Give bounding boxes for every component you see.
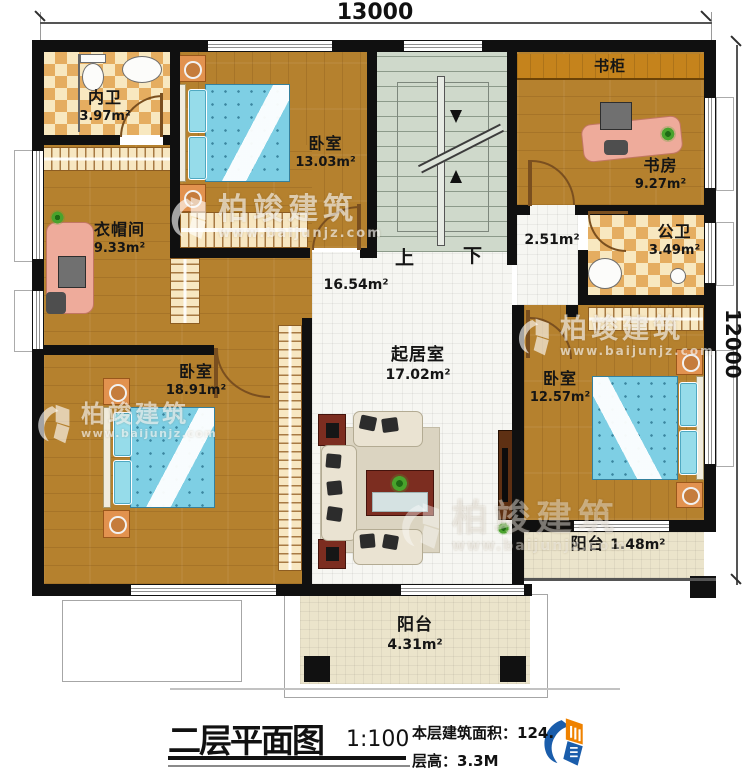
stair-arrow-down-icon [450,110,462,123]
room-area: 9.27m² [608,177,713,194]
room-name: 阳台 [355,614,475,636]
stair-arrow-up-icon [450,170,462,183]
computer-icon [600,102,632,130]
shower-icon [670,268,686,284]
floor-area-value: 124. [517,724,554,742]
railing-line [524,578,716,581]
bed-fold [131,408,214,507]
room-label-bedroom-left: 卧室 18.91m² [138,362,254,400]
room-label-gongwei: 公卫 3.49m² [622,222,727,260]
floor-area-label: 本层建筑面积： [412,724,517,742]
door-leaf [160,93,163,137]
room-name: 书柜 [560,57,660,77]
sink-icon [122,56,162,83]
room-name: 阳台 [571,534,605,553]
plant-icon [660,126,676,142]
room-area: 2.51m² [510,231,594,249]
wall [360,248,367,258]
sink-icon [588,258,622,289]
down-text: 下 [463,245,483,267]
plan-scale: 1:100 [346,727,409,752]
balcony-post [304,656,330,682]
window [403,40,483,52]
toilet-icon [82,63,104,91]
plant-icon [390,474,409,493]
floor-area-line: 本层建筑面积：124. [412,722,554,743]
wall [566,305,578,317]
tv-icon [502,448,508,502]
stair-label-down: 下 [458,244,488,269]
room-area: 12.57m² [502,390,618,407]
door-leaf [526,310,530,358]
cushion [326,480,342,495]
nightstand [103,510,130,538]
bed-headboard [103,407,111,508]
computer-icon [58,256,86,288]
closet [170,258,200,324]
room-area: 1.48m² [610,537,665,553]
closet [43,147,177,171]
room-area: 3.49m² [622,243,727,260]
room-area: 3.97m² [55,109,155,126]
wall [517,205,530,215]
door-leaf [357,204,361,250]
coffee-table-glass [372,492,428,512]
room-label-neiwei: 内卫 3.97m² [55,88,155,126]
room-name: 卧室 [138,362,254,383]
nightstand [178,55,206,82]
window [32,290,44,350]
room-label-balcony-right: 阳台 1.48m² [538,534,698,555]
stair-label-up: 上 [390,246,420,271]
window [130,584,277,596]
room-name: 起居室 [356,344,480,366]
nightstand [178,184,206,212]
room-area: 16.54m² [306,276,406,294]
wall [578,295,716,305]
dimension-right-value: 12000 [721,309,745,375]
nightstand [676,482,703,508]
wall [32,345,214,355]
room-area: 4.31m² [355,636,475,654]
bed [130,407,215,508]
room-name: 卧室 [268,134,383,155]
pillow [679,430,698,475]
room-label-bedroom-right: 卧室 12.57m² [502,369,618,407]
closet [278,325,302,571]
room-label-living: 起居室 17.02m² [356,344,480,384]
room-area: 13.03m² [268,155,383,172]
plan-title: 二层平面图 [168,714,323,762]
door-leaf [528,160,532,206]
closet [588,307,704,331]
nightstand [676,349,703,375]
window [32,150,44,260]
cushion [359,533,375,548]
room-area: 18.91m² [138,383,254,400]
pillow [188,89,207,133]
window [704,350,716,465]
pillow [113,460,132,505]
room-label-bookcase: 书柜 [560,57,660,77]
cushion [382,534,399,550]
floor-height-label: 层高： [412,752,457,770]
pillow [188,136,207,180]
terrace-line [170,688,620,690]
door-leaf [588,211,628,214]
title-block: 二层平面图 1:100 本层建筑面积：124. 层高：3.3M 柏竣建筑 www… [0,700,750,777]
title-underline-2 [168,765,410,767]
desk-chair [604,140,628,155]
balcony-door [400,584,525,596]
room-label-study: 书房 9.27m² [608,156,713,194]
room-name: 内卫 [55,88,155,109]
wall [512,305,524,596]
dimension-top-value: 13000 [320,0,430,25]
room-area: 17.02m² [356,366,480,384]
room-name: 卧室 [502,369,618,390]
wall [163,135,180,145]
floor-height-value: 3.3M [457,752,499,770]
cushion [359,414,378,431]
window-sill [14,290,34,352]
wall [177,248,310,258]
room-area: 9.33m² [62,241,177,258]
room-label-bedroom-top: 卧室 13.03m² [268,134,383,172]
floor-height-line: 层高：3.3M [412,750,499,771]
side-cabinet [318,414,346,446]
room-name: 书房 [608,156,713,177]
room-label-balcony-bottom: 阳台 4.31m² [355,614,475,654]
window [207,40,333,52]
floor-corridor [517,205,578,305]
wall [32,135,120,145]
plant-icon [497,522,510,535]
floor-plan-canvas: 13000 12000 [0,0,750,777]
toilet-tank [80,54,106,63]
window [573,520,670,532]
dimension-extension [711,12,712,40]
window-sill [14,150,34,262]
room-name: 衣帽间 [62,220,177,241]
cushion [325,453,341,468]
pillow [113,412,132,457]
desk-chair [46,292,66,314]
room-label-corridor: 2.51m² [510,231,594,249]
wall [302,318,312,584]
terrace-outline [62,600,242,682]
dimension-tick [700,10,711,21]
nightstand [103,378,130,405]
pillow [679,382,698,427]
window-sill [716,97,734,191]
closet [180,212,308,248]
room-name: 公卫 [622,222,727,243]
wall [32,40,716,52]
cushion [326,506,343,522]
up-text: 上 [395,247,415,269]
cushion [381,417,399,433]
room-label-cloakroom: 衣帽间 9.33m² [62,220,177,258]
balcony-post [500,656,526,682]
room-label-hall: 16.54m² [306,276,406,294]
side-cabinet [318,539,346,569]
